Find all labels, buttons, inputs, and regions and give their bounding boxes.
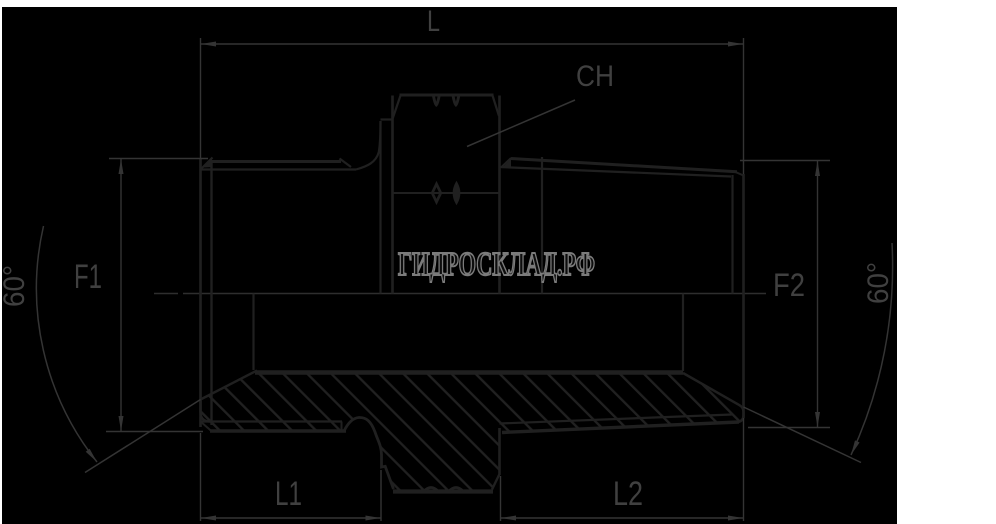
svg-text:L2: L2 — [613, 475, 643, 513]
svg-text:F2: F2 — [773, 267, 805, 303]
svg-text:L1: L1 — [275, 475, 302, 513]
svg-text:F1: F1 — [74, 258, 102, 296]
svg-text:L: L — [427, 5, 440, 38]
svg-text:CH: CH — [576, 60, 614, 93]
svg-text:ГИДРОСКЛАД.РФ: ГИДРОСКЛАД.РФ — [398, 246, 595, 283]
svg-text:60°: 60° — [0, 265, 31, 307]
svg-text:60°: 60° — [862, 262, 895, 304]
